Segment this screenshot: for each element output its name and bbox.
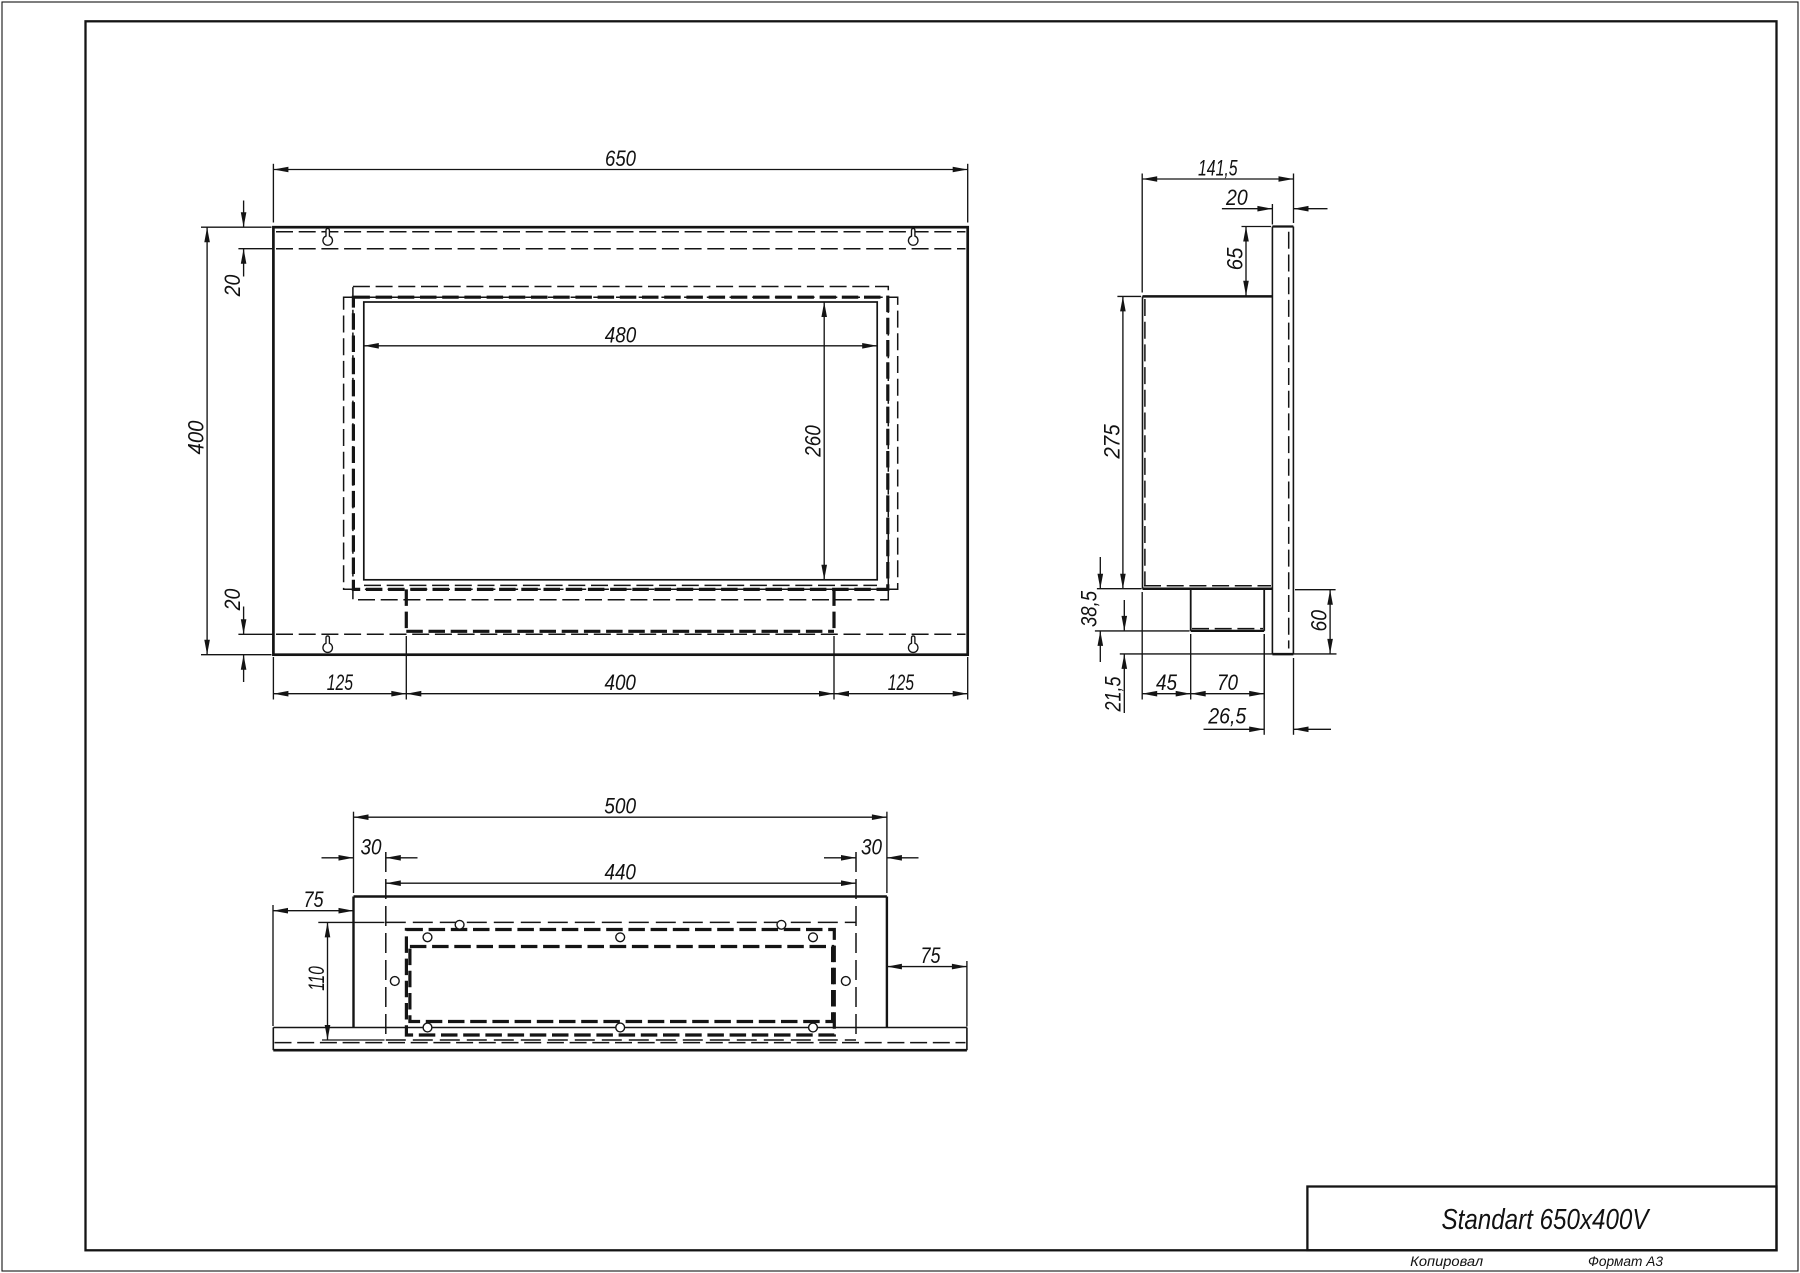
svg-text:480: 480 — [605, 322, 637, 347]
svg-text:30: 30 — [861, 834, 882, 859]
svg-text:70: 70 — [1217, 670, 1238, 695]
svg-text:Копировал: Копировал — [1410, 1254, 1483, 1269]
svg-text:125: 125 — [888, 670, 915, 695]
svg-text:65: 65 — [1222, 247, 1247, 270]
svg-text:110: 110 — [304, 966, 329, 991]
svg-text:400: 400 — [183, 420, 208, 454]
svg-text:440: 440 — [604, 860, 636, 885]
svg-text:400: 400 — [604, 670, 636, 695]
svg-text:125: 125 — [327, 670, 354, 695]
svg-text:500: 500 — [604, 794, 636, 819]
svg-text:260: 260 — [801, 425, 826, 458]
svg-text:45: 45 — [1156, 670, 1177, 695]
svg-text:141,5: 141,5 — [1198, 156, 1238, 181]
svg-text:Standart 650x400V: Standart 650x400V — [1442, 1204, 1651, 1236]
svg-text:20: 20 — [220, 274, 245, 297]
svg-text:275: 275 — [1099, 424, 1124, 460]
svg-text:60: 60 — [1307, 610, 1332, 632]
svg-text:26,5: 26,5 — [1207, 704, 1246, 729]
svg-text:38,5: 38,5 — [1077, 591, 1102, 627]
svg-text:20: 20 — [220, 588, 245, 611]
svg-text:20: 20 — [1225, 185, 1248, 210]
svg-text:75: 75 — [304, 887, 324, 912]
svg-text:75: 75 — [921, 943, 941, 968]
svg-text:21,5: 21,5 — [1101, 676, 1126, 712]
svg-text:30: 30 — [361, 834, 382, 859]
svg-text:650: 650 — [605, 146, 636, 171]
svg-text:Формат А3: Формат А3 — [1588, 1254, 1663, 1269]
